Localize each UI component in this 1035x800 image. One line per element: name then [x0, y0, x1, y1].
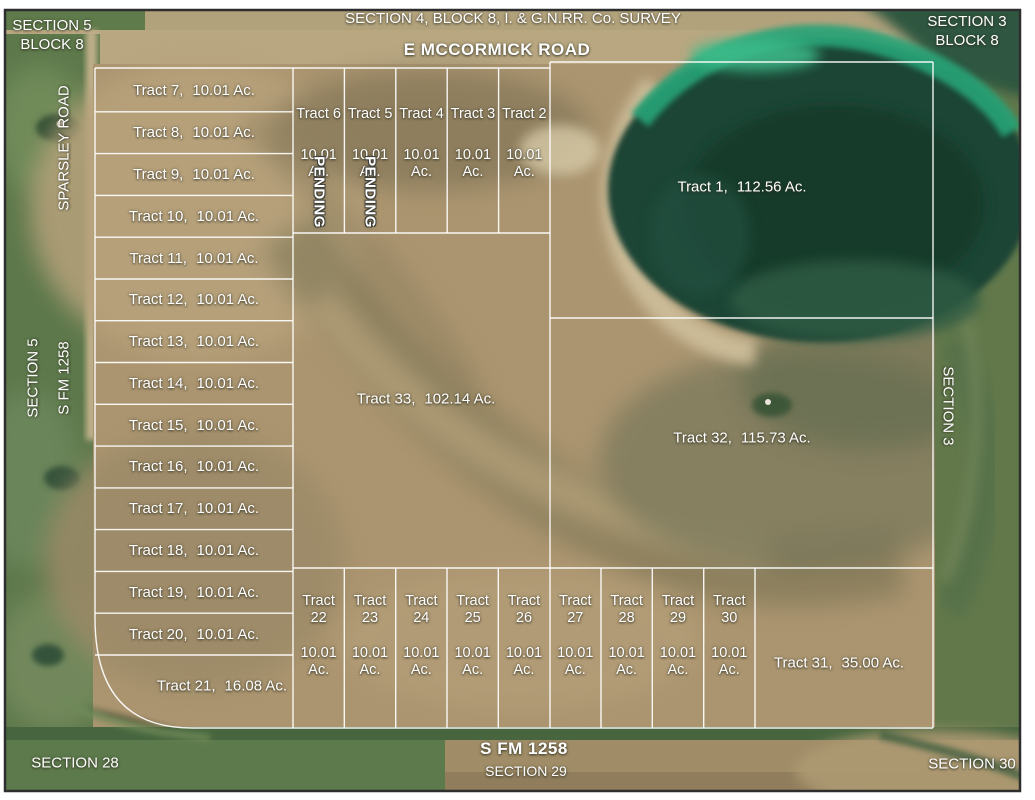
tract-row-17: Tract 17,10.01 Ac. — [95, 488, 293, 530]
pending-label-tract-5: PENDING — [362, 156, 379, 228]
tract-1-label: Tract 1,112.56 Ac. — [677, 179, 806, 196]
left-tract-column: Tract 7,10.01 Ac. Tract 8,10.01 Ac. Trac… — [95, 70, 293, 655]
tract-row-16: Tract 16,10.01 Ac. — [95, 446, 293, 488]
tract-row-10: Tract 10,10.01 Ac. — [95, 195, 293, 237]
tract-cell-24: Tract 2410.01 Ac. — [396, 567, 447, 727]
section-label-bottom-center: SECTION 29 — [485, 763, 567, 779]
pending-label-tract-6: PENDING — [311, 156, 328, 228]
tract-cell-2: Tract 210.01 Ac. — [499, 70, 550, 233]
tract-row-19: Tract 19,10.01 Ac. — [95, 571, 293, 613]
section-label-bottom-left: SECTION 28 — [31, 755, 119, 772]
tract-cell-3: Tract 310.01 Ac. — [447, 70, 498, 233]
tract-row-9: Tract 9,10.01 Ac. — [95, 154, 293, 196]
tract-cell-28: Tract 2810.01 Ac. — [601, 567, 652, 727]
road-label-s-fm-1258-south: S FM 1258 — [480, 739, 568, 759]
tract-cell-27: Tract 2710.01 Ac. — [550, 567, 601, 727]
tract-cell-29: Tract 2910.01 Ac. — [652, 567, 703, 727]
tract-21-label: Tract 21,16.08 Ac. — [157, 678, 287, 695]
tract-cell-4: Tract 410.01 Ac. — [396, 70, 447, 233]
bottom-tract-row: Tract 2210.01 Ac. Tract 2310.01 Ac. Trac… — [293, 567, 755, 727]
tract-row-8: Tract 8,10.01 Ac. — [95, 112, 293, 154]
road-label-s-fm-1258-west: S FM 1258 — [56, 341, 73, 414]
tract-row-18: Tract 18,10.01 Ac. — [95, 530, 293, 572]
section-label-bottom-right: SECTION 30 — [928, 756, 1016, 773]
tract-row-15: Tract 15,10.01 Ac. — [95, 404, 293, 446]
section-label-top-left: SECTION 5 BLOCK 8 — [12, 16, 91, 54]
tract-cell-23: Tract 2310.01 Ac. — [344, 567, 395, 727]
tract-row-12: Tract 12,10.01 Ac. — [95, 279, 293, 321]
tract-row-11: Tract 11,10.01 Ac. — [95, 237, 293, 279]
road-label-sparsley: SPARSLEY ROAD — [56, 85, 73, 210]
tract-32-label: Tract 32,115.73 Ac. — [673, 430, 810, 447]
tract-row-13: Tract 13,10.01 Ac. — [95, 321, 293, 363]
survey-title: SECTION 4, BLOCK 8, I. & G.N.RR. Co. SUR… — [345, 9, 681, 28]
tract-row-7: Tract 7,10.01 Ac. — [95, 70, 293, 112]
road-label-e-mccormick: E MCCORMICK ROAD — [404, 40, 591, 60]
tract-row-14: Tract 14,10.01 Ac. — [95, 362, 293, 404]
tract-row-20: Tract 20,10.01 Ac. — [95, 613, 293, 655]
section-label-left: SECTION 5 — [25, 338, 42, 417]
tract-cell-25: Tract 2510.01 Ac. — [447, 567, 498, 727]
section-label-right: SECTION 3 — [940, 366, 957, 445]
plat-map: SECTION 5 BLOCK 8 SECTION 4, BLOCK 8, I.… — [0, 0, 1035, 800]
tract-33-label: Tract 33,102.14 Ac. — [357, 391, 496, 408]
top-tract-row: Tract 610.01 Ac. Tract 510.01 Ac. Tract … — [293, 70, 550, 233]
tract-31-label: Tract 31,35.00 Ac. — [774, 655, 904, 672]
tract-cell-26: Tract 2610.01 Ac. — [498, 567, 549, 727]
tract-cell-30: Tract 3010.01 Ac. — [704, 567, 755, 727]
section-label-top-right: SECTION 3 BLOCK 8 — [927, 12, 1006, 50]
tract-cell-22: Tract 2210.01 Ac. — [293, 567, 344, 727]
